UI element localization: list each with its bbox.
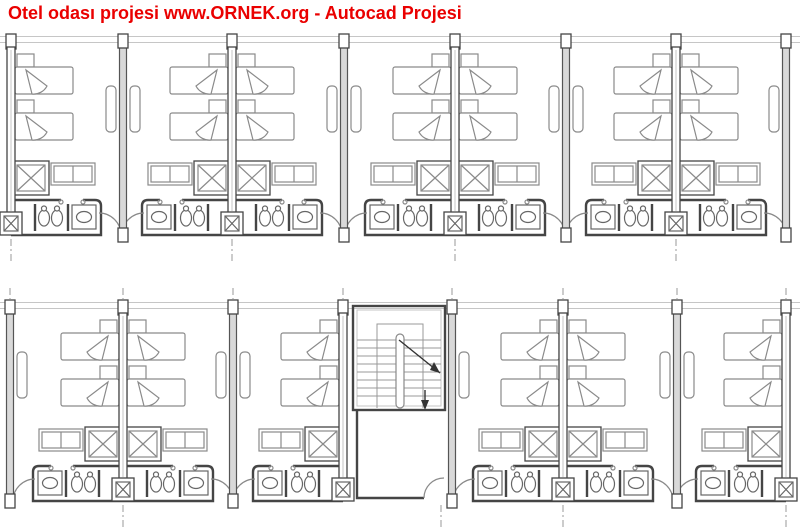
room-instances (0, 34, 800, 530)
desk-unit (17, 352, 27, 398)
stair-handrail (396, 334, 404, 408)
desk-unit (573, 86, 583, 132)
hotel-room (233, 320, 343, 501)
desk-unit (327, 86, 337, 132)
desk-unit (351, 86, 361, 132)
desk-unit (549, 86, 559, 132)
stair-lobby-walls (357, 410, 424, 498)
partition-wall (339, 34, 349, 242)
hotel-room (13, 320, 123, 501)
hotel-room (345, 54, 455, 235)
staircase (353, 306, 445, 498)
hotel-room (122, 54, 232, 235)
desk-unit (769, 86, 779, 132)
hotel-room (455, 54, 565, 235)
hotel-room (563, 320, 673, 501)
desk-unit (216, 352, 226, 398)
desk-unit (240, 352, 250, 398)
desk-unit (106, 86, 116, 132)
hotel-room (566, 54, 676, 235)
floorplan-drawing (0, 0, 800, 532)
partition-wall (228, 300, 238, 508)
partition-wall (5, 300, 15, 508)
hotel-room (123, 320, 233, 501)
desk-unit (130, 86, 140, 132)
hotel-room (676, 54, 786, 235)
partition-wall (118, 34, 128, 242)
hotel-room (453, 320, 563, 501)
partition-wall (561, 34, 571, 242)
stair-lobby-door-arc (424, 478, 444, 498)
hotel-room (232, 54, 342, 235)
partition-wall (447, 300, 457, 508)
hotel-room (11, 54, 121, 235)
desk-unit (684, 352, 694, 398)
desk-unit (660, 352, 670, 398)
desk-unit (459, 352, 469, 398)
hotel-room (676, 320, 786, 501)
autocad-viewport: Otel odası projesi www.ORNEK.org - Autoc… (0, 0, 800, 532)
partition-wall (672, 300, 682, 508)
partition-wall (781, 34, 791, 242)
stair-direction-arrow (399, 340, 440, 410)
